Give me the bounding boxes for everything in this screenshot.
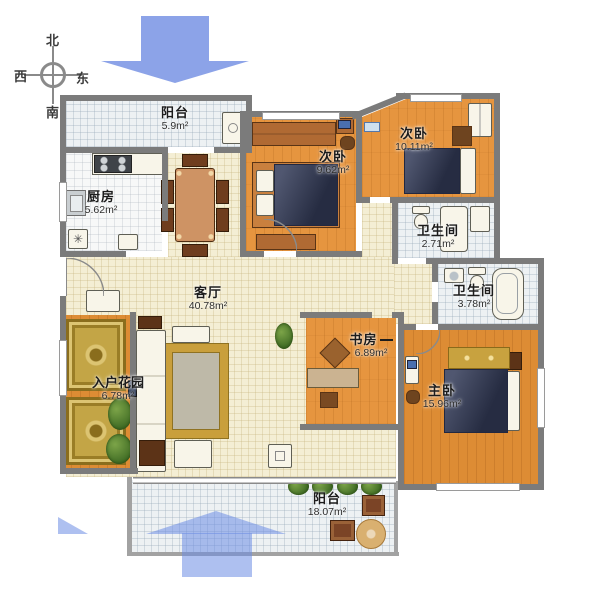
room-label-study: 书房 6.89m² xyxy=(340,333,402,360)
wall xyxy=(432,264,438,282)
stove xyxy=(94,155,132,173)
patio-chair xyxy=(362,495,385,516)
room-name: 书房 xyxy=(340,333,402,347)
north-arrow-stem xyxy=(141,16,209,62)
wall xyxy=(162,153,168,221)
room-area: 15.96m² xyxy=(412,398,472,411)
window xyxy=(436,483,520,491)
compass-axis-v xyxy=(52,46,54,104)
room-area: 40.78m² xyxy=(176,300,240,313)
armchair xyxy=(174,440,212,468)
room-area: 6.78m² xyxy=(84,390,152,403)
south-arrow-stem xyxy=(182,533,252,577)
room-area: 6.89m² xyxy=(340,347,402,360)
side-table xyxy=(138,316,162,329)
mattress xyxy=(460,148,476,194)
bedside-chest xyxy=(452,126,472,146)
floor-drain-icon: ✳ xyxy=(68,229,88,249)
room-label-bedroom-left: 次卧 9.62m² xyxy=(300,150,366,177)
patio-table xyxy=(356,519,386,549)
room-name: 卫生间 xyxy=(442,284,506,298)
compass-west: 西 xyxy=(14,66,27,85)
wall xyxy=(60,468,138,474)
plant xyxy=(106,434,132,464)
wall xyxy=(300,424,404,430)
room-name: 厨房 xyxy=(70,190,132,204)
room-area: 5.9m² xyxy=(140,120,210,133)
room-label-balcony-bottom: 阳台 18.07m² xyxy=(292,492,362,519)
wall xyxy=(62,251,126,257)
corridor-floor xyxy=(362,203,392,257)
room-area: 2.71m² xyxy=(406,238,470,251)
room-label-living: 客厅 40.78m² xyxy=(176,286,240,313)
room-label-bathroom-small: 卫生间 2.71m² xyxy=(406,224,470,251)
side-table xyxy=(139,440,165,466)
wall xyxy=(62,147,168,153)
room-name: 客厅 xyxy=(176,286,240,300)
wall xyxy=(426,258,544,264)
master-door-arc xyxy=(416,330,440,354)
window xyxy=(59,340,67,396)
wall xyxy=(240,111,246,257)
plant xyxy=(275,323,293,349)
bedside-chair xyxy=(340,136,355,150)
wall xyxy=(300,312,372,318)
front-door-arc xyxy=(66,258,104,296)
wall xyxy=(392,203,398,264)
label-leader-line xyxy=(380,339,393,341)
balcony-rail-bottom xyxy=(127,552,399,556)
bath-closet xyxy=(470,206,490,232)
dining-chair xyxy=(182,244,208,257)
pillow xyxy=(256,170,274,192)
tv-icon xyxy=(407,360,417,369)
window xyxy=(59,182,67,222)
patio-chair xyxy=(330,520,355,541)
bed-duvet xyxy=(404,148,460,194)
window xyxy=(262,112,340,120)
bathroom-sink xyxy=(444,268,464,283)
room-label-garden: 入户花园 6.78m² xyxy=(84,376,152,403)
tv-icon xyxy=(338,120,351,129)
dining-chair xyxy=(216,180,229,204)
desk-chair xyxy=(320,392,338,408)
living-rug xyxy=(164,344,228,438)
compass: 北 西 东 南 xyxy=(12,30,102,122)
armchair xyxy=(172,326,210,343)
wardrobe xyxy=(252,122,336,146)
room-label-kitchen: 厨房 5.62m² xyxy=(70,190,132,217)
kitchen-cart xyxy=(118,234,138,250)
north-arrow-head-icon xyxy=(101,61,249,83)
dining-chair xyxy=(216,208,229,232)
room-name: 主卧 xyxy=(412,384,472,398)
toilet-tank xyxy=(412,206,430,214)
wall xyxy=(390,197,500,203)
bedroom-door-arc xyxy=(264,219,297,252)
blue-triangle-decor xyxy=(58,517,88,534)
room-name-text: 书房 xyxy=(349,333,377,347)
wall xyxy=(438,324,544,330)
room-name: 次卧 xyxy=(300,150,366,164)
room-name: 入户花园 xyxy=(84,376,152,390)
balcony-rail-right xyxy=(394,481,398,556)
room-name: 阳台 xyxy=(292,492,362,506)
headboard xyxy=(448,347,510,369)
room-area: 9.62m² xyxy=(300,164,366,177)
room-label-bathroom-large: 卫生间 3.78m² xyxy=(442,284,506,311)
window xyxy=(537,368,545,428)
ac-floor-unit xyxy=(268,444,292,468)
room-area: 3.78m² xyxy=(442,298,506,311)
room-name: 卫生间 xyxy=(406,224,470,238)
wall xyxy=(246,95,252,153)
wall xyxy=(432,302,438,324)
desk xyxy=(307,368,359,388)
sliding-door xyxy=(133,477,396,484)
room-name: 阳台 xyxy=(140,106,210,120)
window xyxy=(410,94,462,102)
compass-east: 东 xyxy=(76,68,89,87)
floor-plan: 北 西 东 南 xyxy=(0,0,600,616)
room-name: 次卧 xyxy=(382,127,446,141)
room-area: 18.07m² xyxy=(292,506,362,519)
toilet-tank xyxy=(468,267,486,275)
dining-chair xyxy=(182,154,208,167)
pillow xyxy=(256,194,274,216)
ac-vent-icon xyxy=(275,451,285,461)
room-label-balcony-top: 阳台 5.9m² xyxy=(140,106,210,133)
ac-unit xyxy=(364,122,380,132)
wall xyxy=(494,93,500,264)
wall xyxy=(296,251,362,257)
washer-door-icon xyxy=(228,123,238,133)
dining-table xyxy=(175,168,215,242)
wall xyxy=(214,147,252,153)
room-area: 10.11m² xyxy=(382,141,446,154)
balcony-rail-left xyxy=(127,477,132,556)
compass-north: 北 xyxy=(46,30,59,49)
room-label-bedroom-right: 次卧 10.11m² xyxy=(382,127,446,154)
room-label-master: 主卧 15.96m² xyxy=(412,384,472,411)
compass-south: 南 xyxy=(46,102,59,121)
room-area: 5.62m² xyxy=(70,204,132,217)
